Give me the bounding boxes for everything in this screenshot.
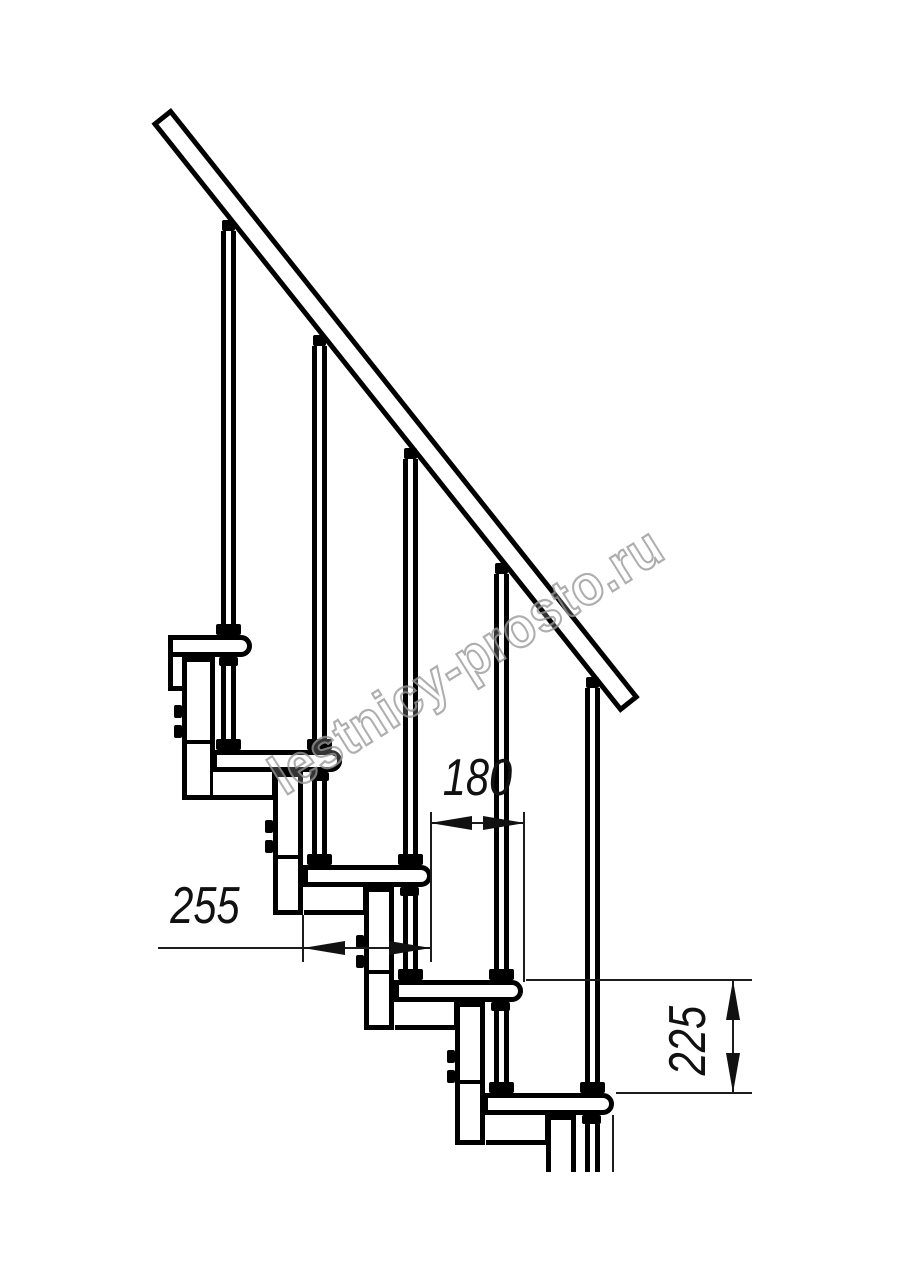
clamp-tab: [265, 840, 273, 853]
column-joint: [273, 855, 303, 859]
arrow-left-icon: [430, 816, 472, 830]
clamp-tab: [174, 725, 182, 738]
baluster-base-collar: [216, 624, 241, 635]
arrow-down-icon: [726, 1053, 740, 1093]
extension-line: [430, 812, 432, 962]
stringer-bracket: [213, 772, 277, 800]
rail-collar: [222, 220, 235, 231]
arrow-up-icon: [726, 980, 740, 1020]
support-column: [364, 887, 394, 1030]
stringer-bracket: [395, 1002, 459, 1030]
bolt-rod: [494, 1011, 509, 1082]
baluster: [312, 346, 327, 739]
projection-line: [612, 1115, 614, 1172]
clamp-tab: [356, 955, 364, 968]
tread: [483, 1093, 614, 1115]
arrow-left-icon: [303, 941, 345, 955]
baluster-nut: [219, 657, 238, 666]
tread: [394, 980, 523, 1002]
arrow-right-icon: [389, 941, 431, 955]
bolt-rod: [221, 666, 236, 739]
extension-line: [523, 812, 525, 982]
rail-collar: [495, 563, 508, 574]
rod-foot-collar: [216, 739, 241, 750]
extension-line: [526, 979, 752, 981]
baluster: [221, 231, 236, 624]
stringer-bracket-cut: [168, 657, 182, 691]
rail-collar: [586, 677, 599, 688]
baluster-base-collar: [398, 854, 423, 865]
clamp-tab: [447, 1070, 455, 1083]
support-column: [546, 1115, 576, 1172]
stringer-bracket: [486, 1115, 550, 1145]
baluster-nut: [491, 1002, 510, 1011]
staircase-drawing: 180 255 225 lestnicy-prosto.ru: [0, 0, 914, 1280]
tread: [168, 635, 252, 657]
baluster: [585, 688, 600, 1082]
column-joint: [364, 970, 394, 974]
bolt-rod: [403, 896, 418, 969]
rail-collar: [313, 335, 326, 346]
clamp-tab: [447, 1050, 455, 1063]
clamp-tab: [174, 705, 182, 718]
baluster-nut: [400, 887, 419, 896]
rod-foot-collar: [307, 854, 332, 865]
column-joint: [182, 740, 215, 744]
rail-collar: [404, 448, 417, 459]
dimension-label-rise: 225: [662, 1006, 714, 1075]
column-joint: [455, 1080, 485, 1084]
baluster-base-collar: [580, 1082, 605, 1093]
rod-foot-collar: [398, 969, 423, 980]
support-column: [455, 1002, 485, 1145]
tread: [303, 865, 432, 887]
dimension-label-rise-wrap: 225: [658, 993, 718, 1089]
dimension-label-run: 180: [436, 752, 520, 804]
extension-line: [616, 1092, 752, 1094]
arrow-right-icon: [483, 816, 525, 830]
rod-foot-collar: [489, 1082, 514, 1093]
baluster-nut: [582, 1115, 601, 1124]
dimension-label-depth: 255: [165, 880, 245, 932]
support-column: [182, 657, 215, 800]
bolt-rod: [585, 1124, 600, 1172]
clamp-tab: [265, 820, 273, 833]
baluster-base-collar: [489, 969, 514, 980]
extension-line: [302, 915, 304, 962]
stringer-bracket: [304, 887, 368, 915]
